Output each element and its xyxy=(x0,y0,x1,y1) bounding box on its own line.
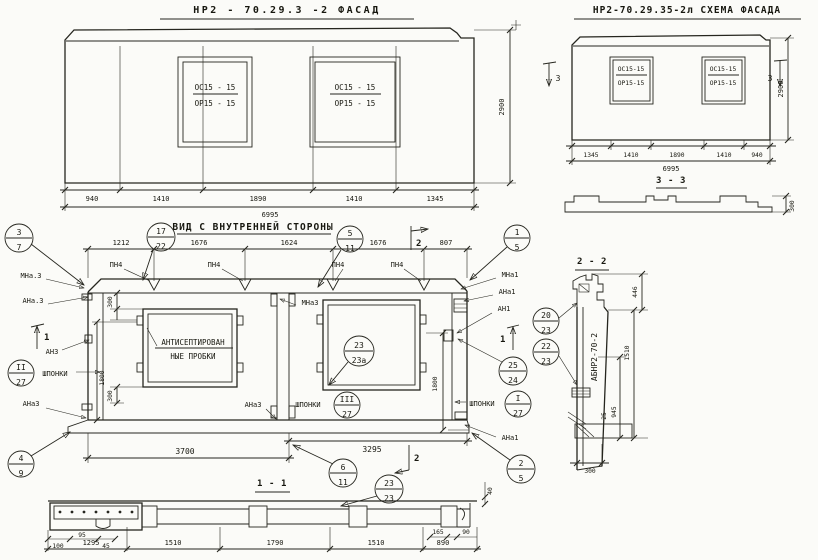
label-shponki: ШПОНКИ xyxy=(42,370,67,378)
callout-top: 17 xyxy=(156,227,166,236)
label-shponki: ШПОНКИ xyxy=(295,401,320,409)
label-ana3: АНа3 xyxy=(23,400,40,408)
section-2-mark-bottom: 2 xyxy=(395,445,420,473)
callout-bottom: 23 xyxy=(541,357,551,366)
callout-5-11: 5 11 xyxy=(318,226,363,287)
label-mna3: МНа.3 xyxy=(20,272,41,280)
dim: 1510 xyxy=(368,539,385,547)
callout-25-24: 25 24 xyxy=(458,339,527,385)
mark-label: 3 xyxy=(768,74,773,83)
section-2-2-dims: 446 1510 945 25 300 xyxy=(570,271,648,475)
section-2-2-title: 2 - 2 xyxy=(577,257,607,267)
callout-III-27: III 27 xyxy=(334,392,360,419)
dim: 1624 xyxy=(281,239,298,247)
dim: 807 xyxy=(440,239,453,247)
dim-40: 40 xyxy=(482,482,494,507)
dim-total: 6995 xyxy=(262,211,279,219)
window-tag-bottom: ОР15 - 15 xyxy=(195,99,236,108)
schema-window-left: ОС15-15 ОР15-15 xyxy=(610,57,653,104)
mark-label: 2 xyxy=(416,239,422,249)
interior-view: ВИД С ВНУТРЕННЕЙ СТОРОНЫ 3 7 17 22 5 11 … xyxy=(5,221,577,507)
callout-top: 2 xyxy=(519,459,524,468)
section-1-1-title: 1 - 1 xyxy=(257,479,287,489)
label-ana3: АНа.3 xyxy=(22,297,43,305)
window-tag-bottom: ОР15-15 xyxy=(710,80,737,87)
section-3-3-title: 3 - 3 xyxy=(656,176,686,186)
interior-side-dims: 300 300 1800 1800 xyxy=(92,290,469,433)
dim: 1790 xyxy=(267,539,284,547)
facade-title: НР2 - 70.29.3 -2 ФАСАД xyxy=(193,5,380,16)
joint-label: ПН4 xyxy=(391,261,404,269)
callout-bottom: 7 xyxy=(17,243,22,252)
dim-height: 2900 xyxy=(777,81,785,98)
callout-top: 22 xyxy=(541,342,551,351)
callout-bottom: 24 xyxy=(508,376,518,385)
dim: 3700 xyxy=(175,447,194,456)
callout-top: 1 xyxy=(515,228,520,237)
callout-top: III xyxy=(340,395,355,404)
dim: 890 xyxy=(437,539,450,547)
dim: 1676 xyxy=(370,239,387,247)
interior-panel: АНТИСЕПТИРОВАН НЫЕ ПРОБКИ xyxy=(68,279,469,433)
callout-top: 6 xyxy=(341,463,346,472)
callout-bottom: 11 xyxy=(338,478,348,487)
dim: 1345 xyxy=(583,152,598,159)
mark-label: 3 xyxy=(556,74,561,83)
callout-bottom: 23а xyxy=(352,356,367,365)
dim: 1345 xyxy=(427,195,444,203)
section-3-mark-left: 3 xyxy=(543,62,561,86)
callout-3-7: 3 7 xyxy=(5,224,84,285)
interior-left-labels: МНа.3 АНа.3 1 АН3 II 27 ШПОНКИ АНа3 4 xyxy=(8,272,100,478)
callout-23-23a: 23 23а xyxy=(329,336,374,385)
callout-top: 3 xyxy=(17,228,22,237)
window-tag-top: ОС15-15 xyxy=(618,66,645,73)
dim: 300 xyxy=(789,200,796,212)
dim: 25 xyxy=(601,412,608,420)
dim: 1890 xyxy=(250,195,267,203)
dim: 1410 xyxy=(716,152,731,159)
mark-label: 1 xyxy=(500,335,506,345)
joint-label: ПН4 xyxy=(332,261,345,269)
label-mna1: МНа1 xyxy=(502,271,519,279)
dim: 1410 xyxy=(346,195,363,203)
callout-20-23: 20 23 xyxy=(533,303,577,335)
dim: 300 xyxy=(107,390,114,402)
callout-top: 25 xyxy=(508,361,518,370)
schema-height-dim: 2900 xyxy=(770,35,794,143)
joint-labels: ПН4 ПН4 ПН4 ПН4 xyxy=(110,261,421,281)
dim: 1510 xyxy=(624,345,631,360)
section-1-1: 1 - 1 100 95 45 1295 1510 xyxy=(44,479,481,552)
callout-4-9: 4 9 xyxy=(8,432,70,478)
label-ana3: АНа3 xyxy=(245,401,262,409)
facade-view: НР2 - 70.29.3 -2 ФАСАД ОС15 - 15 ОР15 - … xyxy=(60,5,521,219)
label-an3: АН3 xyxy=(46,348,59,356)
window-tag-top: ОС15 - 15 xyxy=(335,83,376,92)
joint-label: ПН4 xyxy=(208,261,221,269)
dim: 1676 xyxy=(191,239,208,247)
dim: 3295 xyxy=(362,445,381,454)
dim: 165 xyxy=(432,529,444,536)
callout-bottom: 5 xyxy=(519,474,524,483)
corner-cross xyxy=(511,20,521,30)
dim: 1410 xyxy=(153,195,170,203)
mark-label: 2 xyxy=(414,454,420,464)
interior-dim-bottom: 3295 3700 2 6 11 23 23 xyxy=(83,433,494,507)
callout-17-22: 17 22 xyxy=(143,223,175,280)
dim: 1510 xyxy=(165,539,182,547)
callout-bottom: 11 xyxy=(345,244,355,253)
schema-view: НР2-70.29.35-2л СХЕМА ФАСАДА ОС15-15 ОР1… xyxy=(543,5,801,215)
section-2-2: 2 - 2 АБНР2-70-2 446 1510 945 25 xyxy=(568,257,648,475)
callout-I-27: I 27 xyxy=(505,391,531,418)
callout-top: I xyxy=(516,394,521,403)
callout-top: II xyxy=(16,363,26,372)
dim: 446 xyxy=(632,286,639,298)
schema-dim-chain: 1345 1410 1890 1410 940 6995 xyxy=(566,140,776,173)
callout-bottom: 27 xyxy=(16,378,26,387)
dim-total: 6995 xyxy=(663,165,680,173)
callout-top: 20 xyxy=(541,311,551,320)
callout-top: 23 xyxy=(384,479,394,488)
callout-bottom: 9 xyxy=(19,469,24,478)
section-1-mark-left: 1 xyxy=(31,324,50,349)
mark-label: 1 xyxy=(44,333,50,343)
callout-6-11: 6 11 xyxy=(293,445,357,487)
label-shponki: ШПОНКИ xyxy=(469,400,494,408)
dim: 945 xyxy=(611,406,618,418)
facade-height-dim: 2900 xyxy=(474,27,516,186)
callout-bottom: 27 xyxy=(342,410,352,419)
interior-right-labels: МНа1 АНа1 АН1 1 20 23 22 23 xyxy=(455,271,577,483)
schema-title: НР2-70.29.35-2л СХЕМА ФАСАДА xyxy=(593,5,781,16)
callout-bottom: 27 xyxy=(513,409,523,418)
interior-title: ВИД С ВНУТРЕННЕЙ СТОРОНЫ xyxy=(172,221,333,233)
dim: 940 xyxy=(86,195,99,203)
window-tag-bottom: ОР15 - 15 xyxy=(335,99,376,108)
panel-stamp: АБНР2-70-2 xyxy=(590,333,599,381)
callout-top: 5 xyxy=(348,229,353,238)
label-an1: АН1 xyxy=(498,305,511,313)
label-ana1: АНа1 xyxy=(502,434,519,442)
callout-top: 23 xyxy=(354,341,364,350)
dim: 90 xyxy=(462,529,470,536)
callout-bottom: 5 xyxy=(515,243,520,252)
callout-22-23: 22 23 xyxy=(533,339,577,385)
dim: 1212 xyxy=(113,239,130,247)
interior-dim-top: 1212 1676 1624 1676 807 xyxy=(83,239,472,281)
facade-window-left: ОС15 - 15 ОР15 - 15 xyxy=(178,57,252,147)
section-1-mark-right: 1 xyxy=(500,325,519,350)
dim: 940 xyxy=(751,152,763,159)
blueprint-svg: НР2 - 70.29.3 -2 ФАСАД ОС15 - 15 ОР15 - … xyxy=(0,0,818,560)
window-tag-top: ОС15-15 xyxy=(710,66,737,73)
section-1-1-dims: 100 95 45 1295 1510 1790 1510 890 165 90 xyxy=(44,527,481,552)
dim-height: 2900 xyxy=(498,99,506,116)
window-tag-bottom: ОР15-15 xyxy=(618,80,645,87)
callout-top: 4 xyxy=(19,454,24,463)
dim: 1410 xyxy=(623,152,638,159)
joint-label: ПН4 xyxy=(110,261,123,269)
dim: 300 xyxy=(107,296,114,308)
dim: 95 xyxy=(78,532,86,539)
window-tag-top: ОС15 - 15 xyxy=(195,83,236,92)
callout-1-5: 1 5 xyxy=(470,225,530,280)
dim: 1800 xyxy=(99,370,106,385)
interior-middle-labels: МНа3 АНа3 ШПОНКИ III 27 xyxy=(245,299,360,419)
facade-window-right: ОС15 - 15 ОР15 - 15 xyxy=(310,57,400,147)
label-ana1: АНа1 xyxy=(499,288,516,296)
section-3-3: 3 - 3 300 xyxy=(565,176,796,215)
dim: 40 xyxy=(487,487,494,495)
dim: 300 xyxy=(584,468,596,475)
plugs-note-line2: НЫЕ ПРОБКИ xyxy=(170,352,215,361)
drawing-canvas: НР2 - 70.29.3 -2 ФАСАД ОС15 - 15 ОР15 - … xyxy=(0,0,818,560)
schema-window-right: ОС15-15 ОР15-15 xyxy=(702,57,745,104)
dim: 1890 xyxy=(669,152,684,159)
plugs-note-line1: АНТИСЕПТИРОВАН xyxy=(161,338,225,347)
section-2-mark-top: 2 xyxy=(411,226,428,250)
callout-bottom: 22 xyxy=(156,242,166,251)
dim: 1800 xyxy=(432,376,439,391)
label-mna3: МНа3 xyxy=(302,299,319,307)
dim: 1295 xyxy=(83,539,100,547)
callout-bottom: 23 xyxy=(541,326,551,335)
facade-dim-chain: 940 1410 1890 1410 1345 6995 xyxy=(60,183,479,219)
callout-II-27: II 27 xyxy=(8,360,34,387)
